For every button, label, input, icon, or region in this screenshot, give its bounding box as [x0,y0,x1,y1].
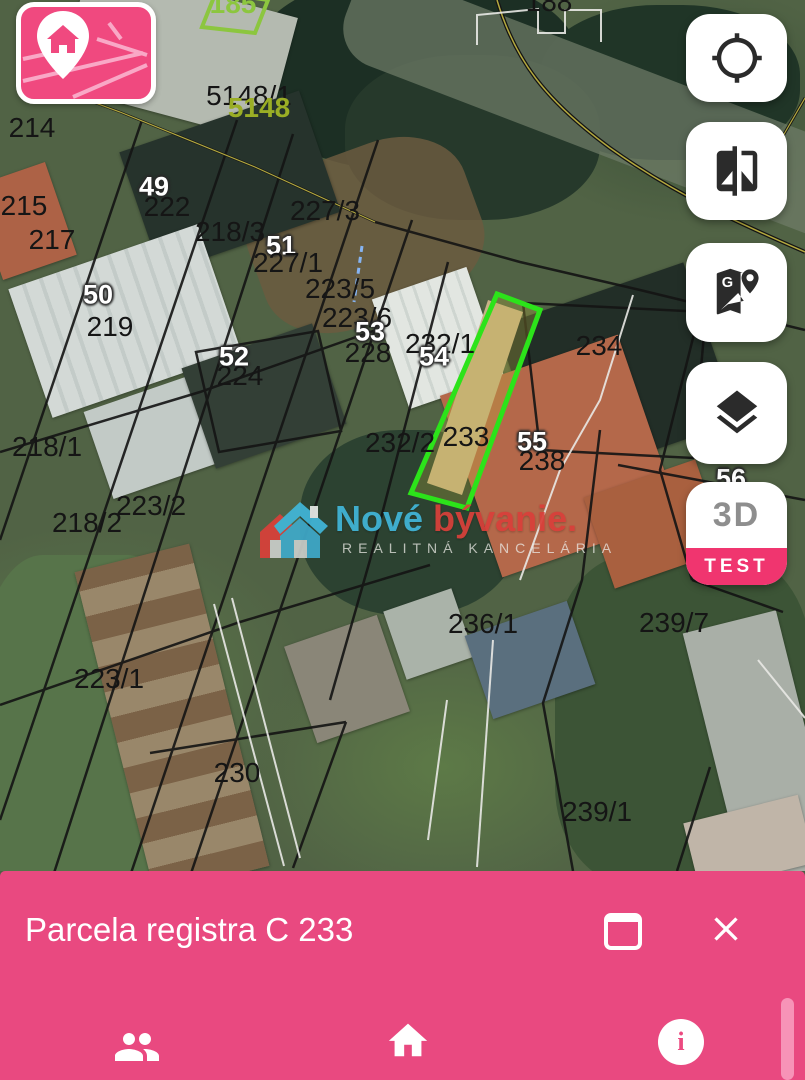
info-nav-button[interactable]: i [658,1019,704,1065]
parcel-label-228: 228 [345,337,392,369]
agency-name-part1: Nové [335,498,433,539]
parcel-label-222: 222 [144,191,191,223]
agency-name: Nové bývanie. [335,498,577,540]
parcel-label-239-7: 239/7 [639,607,709,639]
parcel-label-232-2: 232/2 [365,427,435,459]
parcel-label-234: 234 [576,330,623,362]
home-icon [385,1017,431,1061]
info-icon: i [677,1027,684,1057]
google-maps-button[interactable]: G [686,243,787,342]
close-icon [706,909,746,949]
parcel-label-238: 238 [519,445,566,477]
parcel-label-230: 230 [214,757,261,789]
compare-icon [710,144,764,198]
layers-button[interactable] [686,362,787,464]
parcel-label-214: 214 [9,112,56,144]
parcel-label-218-2: 218/2 [52,507,122,539]
layers-icon [710,386,764,440]
3d-test-button[interactable]: 3D TEST [686,482,787,585]
contacts-nav-button[interactable] [112,1023,162,1068]
panel-title: Parcela registra C 233 [25,911,353,949]
agency-name-part2: bývanie [433,498,567,539]
parcel-label-236-1: 236/1 [448,608,518,640]
parcel-label-224: 224 [217,360,264,392]
parcel-label-239-1: 239/1 [562,796,632,828]
parcel-label-218-3: 218/3 [195,216,265,248]
compare-maps-button[interactable] [686,122,787,220]
parcel-info-panel: Parcela registra C 233 i [0,871,805,1080]
satellite-map[interactable]: 1881855148/1514821421521749222218/351227… [0,0,805,871]
parcel-label-54: 54 [419,342,449,373]
expand-window-button[interactable] [604,913,642,950]
svg-text:G: G [721,275,732,291]
parcel-label-227-3: 227/3 [290,195,360,227]
parcel-label-50: 50 [83,280,113,311]
agency-subtitle: REALITNÁ KANCELÁRIA [342,540,617,556]
agency-house-icon [250,492,330,564]
google-maps-icon: G [710,266,764,320]
app-logo-button[interactable] [16,2,156,104]
home-nav-button[interactable] [385,1017,431,1066]
parcel-label-185: 185 [210,0,257,20]
locate-button[interactable] [686,14,787,102]
parcel-label-218-1: 218/1 [12,431,82,463]
parcel-label-215: 215 [1,190,48,222]
3d-label: 3D [686,482,787,548]
parcel-label-188: 188 [526,0,573,18]
my-location-icon [710,31,764,85]
agency-watermark: Nové bývanie. REALITNÁ KANCELÁRIA [250,492,560,572]
parcel-label-233: 233 [443,421,490,453]
map-pin-house-icon [21,7,151,99]
panel-scrollbar[interactable] [781,998,794,1080]
parcel-label-223-5: 223/5 [305,273,375,305]
parcel-label-5148: 5148 [228,92,290,124]
parcel-label-223-2: 223/2 [116,490,186,522]
test-badge: TEST [686,548,787,585]
parcel-label-217: 217 [29,224,76,256]
parcel-label-219: 219 [87,311,134,343]
people-icon [112,1023,162,1063]
close-button[interactable] [706,909,746,949]
parcel-label-223-1: 223/1 [74,663,144,695]
